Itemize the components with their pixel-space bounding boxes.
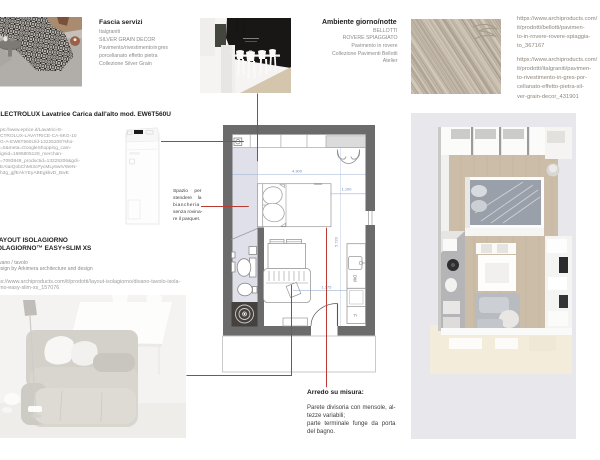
svg-text:DW: DW: [353, 275, 358, 282]
svg-text:5.720: 5.720: [334, 236, 339, 247]
svg-text:4.300: 4.300: [292, 169, 303, 174]
svg-text:1.100: 1.100: [342, 187, 353, 192]
svg-text:F: F: [353, 314, 358, 317]
